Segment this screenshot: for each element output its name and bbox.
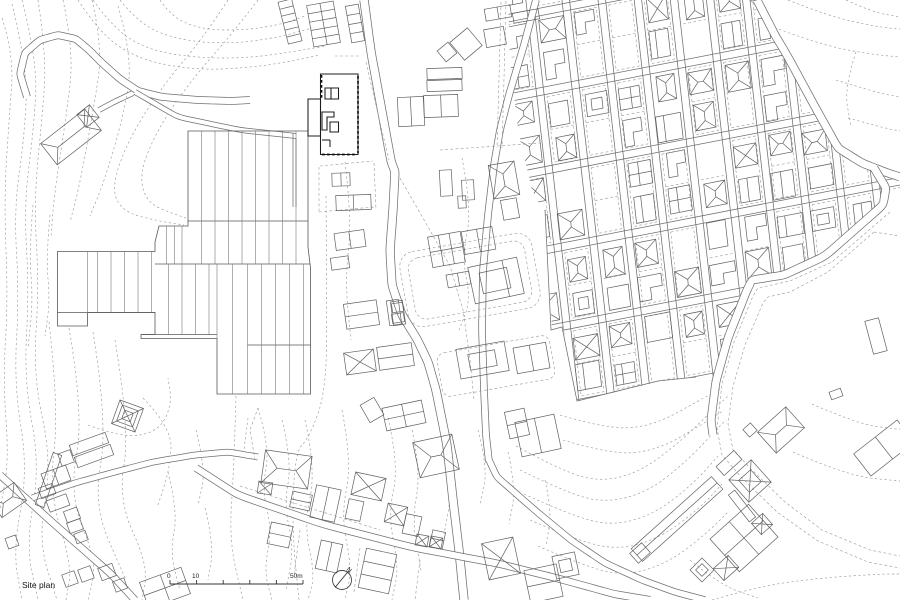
svg-text:0: 0 xyxy=(167,573,171,580)
svg-text:50m: 50m xyxy=(290,573,303,580)
svg-text:Site plan: Site plan xyxy=(22,580,55,590)
svg-text:10: 10 xyxy=(192,573,200,580)
